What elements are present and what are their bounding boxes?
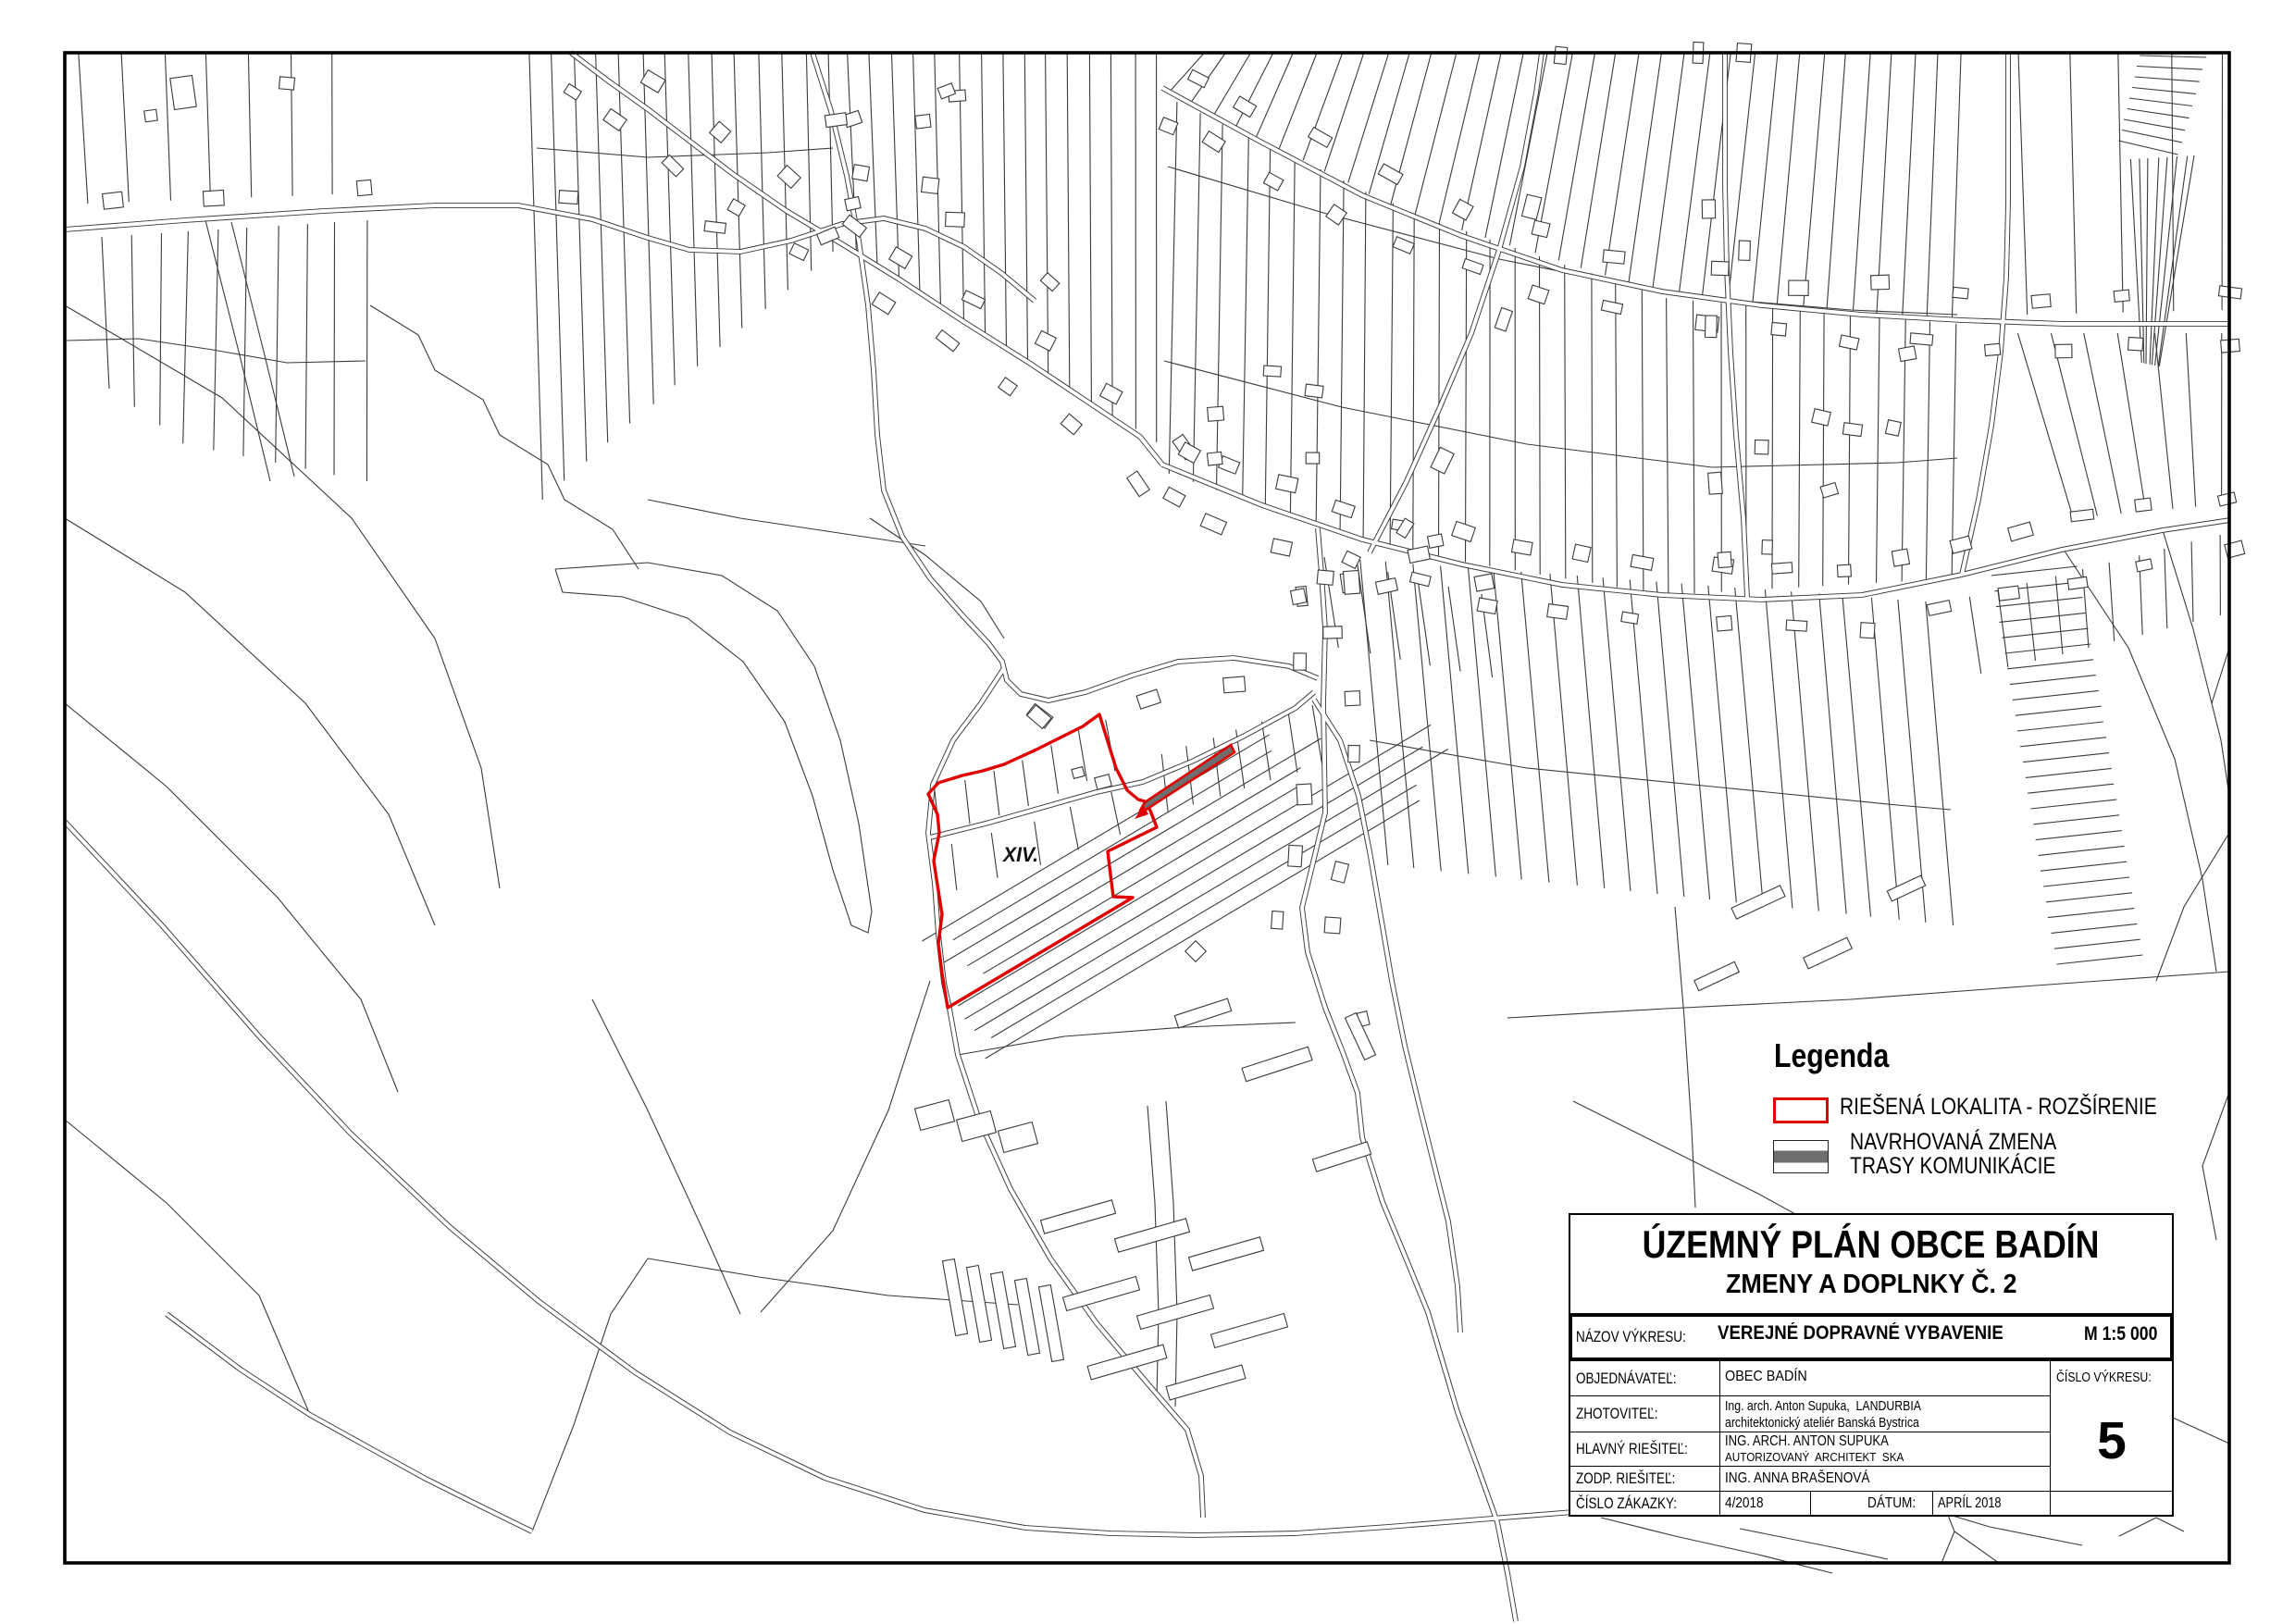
svg-text:XIV.: XIV. [1001,843,1038,866]
